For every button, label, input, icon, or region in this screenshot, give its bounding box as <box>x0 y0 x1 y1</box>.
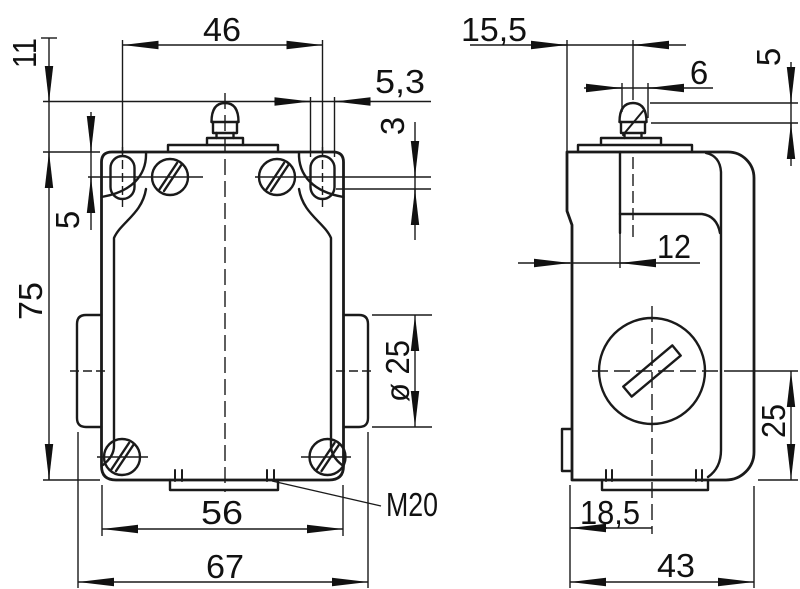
side-view: 15,5 6 5 12 <box>461 11 798 588</box>
limit-switch-drawing: 46 11 75 5 5,3 <box>0 0 800 589</box>
dim-plunger-offset: 15,5 <box>461 11 686 151</box>
dim-slot-width: 5,3 <box>274 63 425 157</box>
dim-label-46: 46 <box>203 11 241 48</box>
dim-gland-offset: 18,5 <box>570 494 652 531</box>
front-bottom-plate <box>170 480 278 490</box>
dim-label-dia-25: ø 25 <box>379 340 416 402</box>
dim-label-15-5: 15,5 <box>461 11 527 48</box>
side-left-tab <box>562 429 572 471</box>
side-bottom-plate <box>602 480 708 490</box>
callout-cable-gland: M20 <box>272 481 438 523</box>
dim-hole-offset: 5 <box>49 112 91 230</box>
dim-label-5-3: 5,3 <box>375 63 425 100</box>
dim-slot-play: 3 <box>336 117 431 240</box>
dim-label-75: 75 <box>12 282 49 320</box>
dim-bottom-width: 56 <box>102 485 343 536</box>
dim-head-center-height: 25 <box>724 371 798 480</box>
side-plunger <box>601 103 661 145</box>
dim-label-25: 25 <box>755 404 792 438</box>
dim-label-12: 12 <box>657 228 691 265</box>
dim-label-5-side: 5 <box>750 48 787 66</box>
dim-side-plug-dia: ø 25 <box>372 315 432 427</box>
dim-plunger-dia: 6 <box>584 54 713 118</box>
dim-label-m20: M20 <box>386 486 438 523</box>
dim-label-18-5: 18,5 <box>580 494 640 531</box>
dim-head-step: 12 <box>518 228 700 265</box>
front-view: 46 11 75 5 5,3 <box>6 11 438 588</box>
dim-label-56: 56 <box>201 494 243 531</box>
dim-label-3: 3 <box>374 117 411 135</box>
dim-label-11: 11 <box>6 38 43 68</box>
dimension-drawing: 46 11 75 5 5,3 <box>0 0 800 589</box>
dim-label-5-front: 5 <box>49 211 86 229</box>
dim-plunger-tip-height: 5 <box>650 48 798 166</box>
dim-label-6: 6 <box>690 54 708 91</box>
dim-label-67: 67 <box>206 548 244 585</box>
dim-label-43: 43 <box>657 547 695 584</box>
